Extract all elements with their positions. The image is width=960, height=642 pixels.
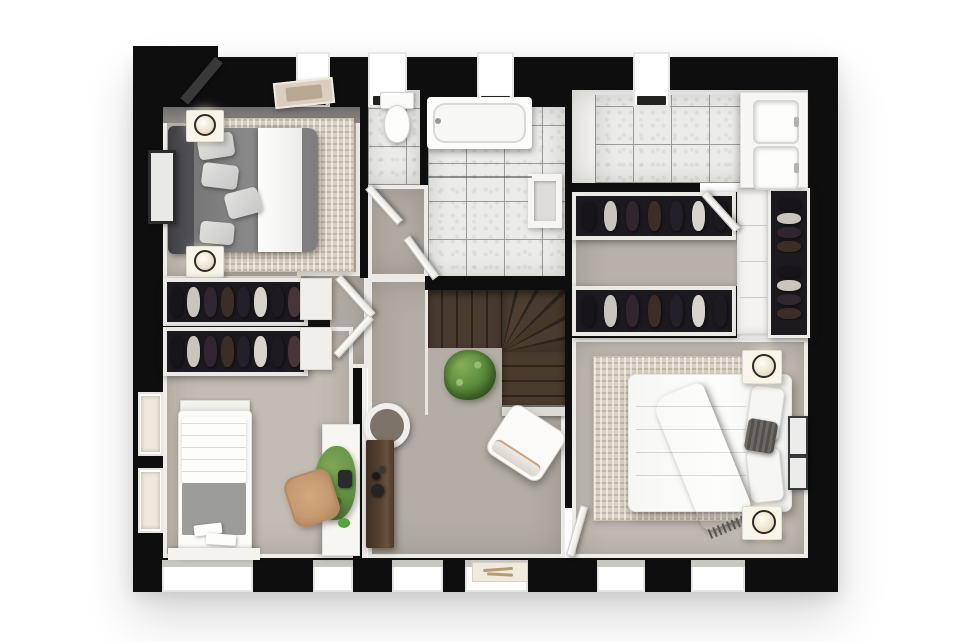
- clothes-bundle: [777, 241, 800, 252]
- glowing-table-lamp: [752, 510, 776, 534]
- window-left-2: [138, 468, 163, 533]
- toilet-bowl: [384, 105, 410, 143]
- clothes-stack-top: [773, 196, 805, 254]
- bedroom-3-built-in-wardrobe: [163, 327, 308, 376]
- bathtub-faucet: [435, 118, 441, 124]
- clothes-bundle: [254, 287, 267, 317]
- table-lamp: [194, 250, 216, 272]
- clothes-bundle: [237, 336, 250, 366]
- shelf-line: [740, 297, 767, 298]
- clothes-bundle: [777, 308, 800, 319]
- bathtub-basin: [433, 103, 526, 143]
- window-bench: [168, 548, 260, 560]
- window-sill: [597, 560, 645, 567]
- wall-niche: [528, 174, 562, 228]
- clothes-bundle: [777, 199, 800, 210]
- clothes-bundle: [582, 201, 595, 231]
- window-bottom-5: [597, 560, 645, 592]
- walkin-clothes-rail-bottom: [572, 286, 736, 336]
- pillow: [199, 221, 235, 246]
- clothes-bundle: [254, 336, 267, 366]
- wall-bathroom-south: [425, 276, 572, 290]
- clothes-bundle: [187, 336, 200, 366]
- clothes-bundle: [777, 213, 800, 224]
- clothes-bundle: [692, 295, 705, 326]
- clothes-bundle: [670, 201, 683, 231]
- table-lamp: [194, 114, 216, 136]
- roof-parapet-top-left: [133, 46, 218, 60]
- clothes-bundle: [692, 201, 705, 231]
- clothes-bundle: [170, 336, 183, 366]
- bathtub: [427, 97, 532, 149]
- clothes-bundle: [237, 287, 250, 317]
- clothes-bundle: [582, 295, 595, 326]
- clothes-bundle: [648, 295, 661, 326]
- window-sill: [691, 560, 745, 567]
- window-sill: [313, 560, 353, 567]
- clothes-rail: [168, 332, 303, 371]
- shower-screen: [428, 176, 532, 178]
- pillow: [745, 446, 784, 503]
- wardrobe-end-panel: [300, 278, 332, 320]
- niche-recess: [534, 181, 556, 221]
- desk-lamp: [338, 470, 352, 488]
- wall-ensuite-south: [572, 183, 700, 192]
- wardrobe-end-panel: [300, 327, 332, 370]
- sink-bottom: [753, 146, 799, 190]
- clothes-bundle: [604, 201, 617, 231]
- small-plant: [338, 518, 350, 528]
- staircase-winder-corner: [502, 290, 565, 352]
- window-left-1: [138, 392, 163, 456]
- clothes-bundle: [626, 201, 639, 231]
- shelf-line: [740, 225, 767, 226]
- clothes-bundle: [170, 287, 183, 317]
- clothes-bundle: [777, 227, 800, 238]
- console-decor: [371, 484, 384, 497]
- exterior-wall-right: [808, 57, 838, 592]
- knit-cushion: [743, 418, 778, 455]
- faucet: [794, 117, 799, 127]
- decor-item: [483, 567, 513, 572]
- clothes-rail: [577, 291, 731, 331]
- clothes-rail: [774, 264, 804, 320]
- master-built-in-wardrobe: [163, 278, 308, 326]
- console-table: [366, 440, 394, 548]
- window-sill: [637, 96, 665, 105]
- clothes-bundle: [777, 266, 800, 277]
- clothes-rail: [774, 197, 804, 253]
- glowing-table-lamp: [752, 354, 776, 378]
- window-bottom-3: [392, 560, 443, 592]
- window-top-4: [633, 52, 670, 107]
- pillow: [201, 162, 240, 190]
- stair-side-trim: [425, 290, 428, 415]
- clothes-bundle: [777, 294, 800, 305]
- clothes-bundle: [714, 295, 727, 326]
- clothes-stack-bottom: [773, 263, 805, 321]
- faucet: [794, 163, 799, 173]
- window-reveal: [141, 396, 160, 452]
- window-bottom-6: [691, 560, 745, 592]
- ensuite-double-vanity: [740, 92, 808, 188]
- clothes-bundle: [670, 295, 683, 326]
- open-shelving: [768, 188, 810, 338]
- master-wall-art: [148, 150, 176, 224]
- folded-towel: [206, 533, 237, 546]
- clothes-bundle: [777, 280, 800, 291]
- window-bottom-2: [313, 560, 353, 592]
- floor-plan-render: [0, 0, 960, 642]
- tall-cabinet: [737, 188, 770, 334]
- wall-art-frame: [788, 416, 808, 456]
- clothes-bundle: [187, 287, 200, 317]
- shelf-line: [740, 261, 767, 262]
- wall-art-frame: [788, 456, 808, 490]
- duvet: [182, 417, 246, 483]
- clothes-bundle: [221, 287, 234, 317]
- clothes-bundle: [271, 336, 284, 366]
- wall-central-spine: [565, 90, 572, 508]
- clothes-bundle: [204, 336, 217, 366]
- clothes-bundle: [204, 287, 217, 317]
- clothes-bundle: [604, 295, 617, 326]
- ceiling-light-diffuser: [285, 84, 322, 102]
- window-sill: [162, 560, 253, 567]
- clothes-bundle: [648, 201, 661, 231]
- decor-item: [487, 572, 513, 576]
- console-decor: [379, 466, 385, 472]
- clothes-bundle: [221, 336, 234, 366]
- master-bed-white-runner: [258, 128, 302, 252]
- window-reveal: [141, 472, 160, 529]
- sink-top: [753, 100, 799, 144]
- window-sill-decor: [472, 562, 528, 582]
- clothes-bundle: [626, 295, 639, 326]
- clothes-rail: [168, 283, 303, 321]
- console-decor: [372, 472, 380, 480]
- window-bottom-1: [162, 560, 253, 592]
- window-sill: [392, 560, 443, 567]
- staircase-upper-flight: [428, 290, 502, 348]
- clothes-bundle: [271, 287, 284, 317]
